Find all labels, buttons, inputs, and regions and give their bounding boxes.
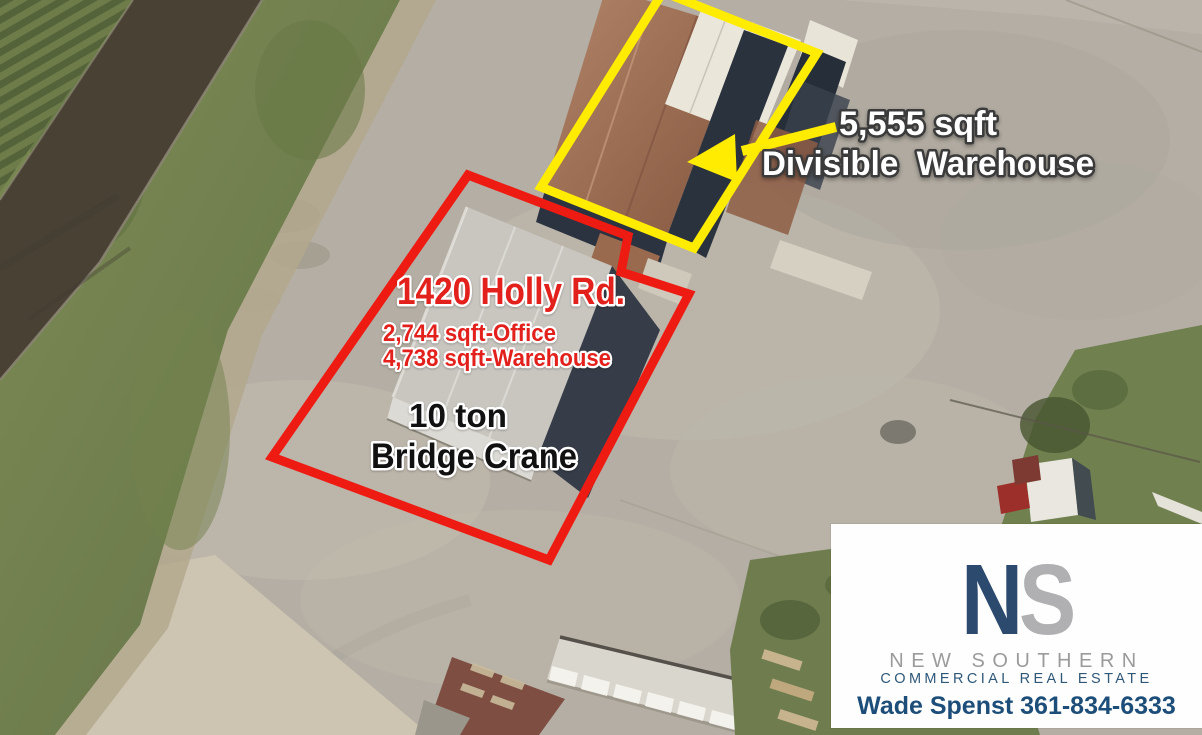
brand-company-name: NEW SOUTHERN [831,651,1202,671]
crane-label: Bridge Crane [371,437,577,476]
brand-panel: NS NEW SOUTHERN COMMERCIAL REAL ESTATE W… [831,524,1202,728]
brand-company-subtitle: COMMERCIAL REAL ESTATE [831,672,1202,687]
warehouse-sqft-label: 5,555 sqft [839,105,997,143]
aerial-listing-image: 5,555 sqft Divisible Warehouse 1420 Holl… [0,0,1202,735]
crane-capacity-label: 10 ton [409,397,507,434]
brand-monogram-n: N [961,544,1019,656]
warehouse-highlight-outline [541,0,817,248]
brand-logo-monogram: NS [857,550,1176,650]
warehouse-divisible-label: Divisible Warehouse [762,145,1094,183]
warehouse-area-label: 4,738 sqft-Warehouse [383,345,611,372]
callout-arrow-head-icon [687,134,737,182]
brand-contact-phone: Wade Spenst 361-834-6333 [831,694,1202,719]
office-sqft-label: 2,744 sqft-Office [383,320,556,347]
brand-monogram-s: S [1019,544,1072,656]
property-address-label: 1420 Holly Rd. [397,271,625,313]
